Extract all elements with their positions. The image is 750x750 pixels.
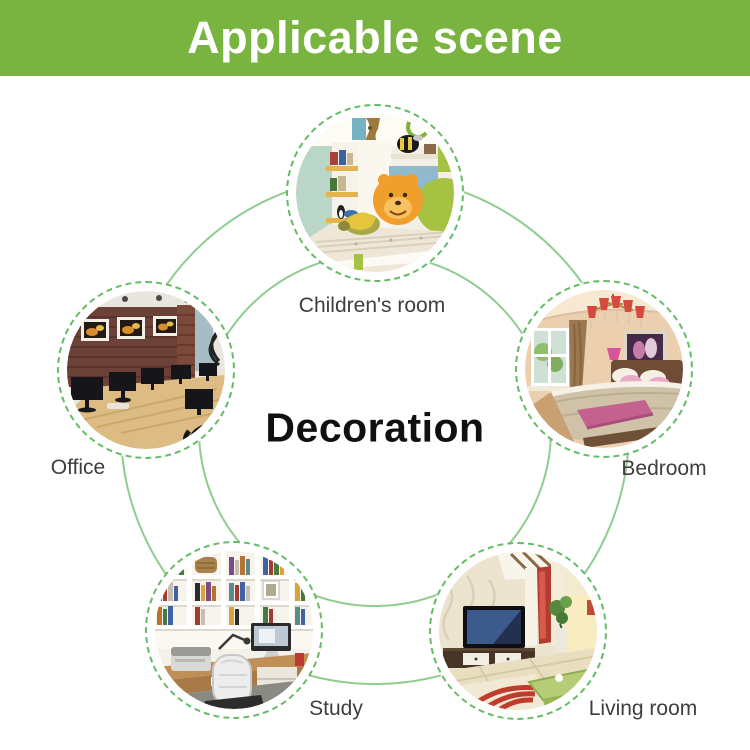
scene-node-office	[57, 281, 235, 459]
scene-diagram: Children's room Bedroom Living room Stud…	[0, 76, 750, 750]
children-room-photo	[296, 114, 454, 272]
center-decoration-label: Decoration	[265, 405, 484, 452]
scene-node-living-room	[429, 542, 607, 720]
scene-label-children-room: Children's room	[299, 294, 445, 318]
applicable-scene-page: Applicable scene	[0, 0, 750, 750]
page-title: Applicable scene	[187, 12, 563, 64]
scene-label-study: Study	[309, 697, 363, 721]
scene-label-bedroom: Bedroom	[621, 457, 706, 481]
scene-label-office: Office	[51, 456, 105, 480]
living-room-photo	[439, 552, 597, 710]
office-photo	[67, 291, 225, 449]
study-photo	[155, 551, 313, 709]
scene-node-study	[145, 541, 323, 719]
scene-node-children-room	[286, 104, 464, 282]
scene-node-bedroom	[515, 280, 693, 458]
scene-label-living-room: Living room	[589, 697, 698, 721]
header-banner: Applicable scene	[0, 0, 750, 76]
bedroom-photo	[525, 290, 683, 448]
